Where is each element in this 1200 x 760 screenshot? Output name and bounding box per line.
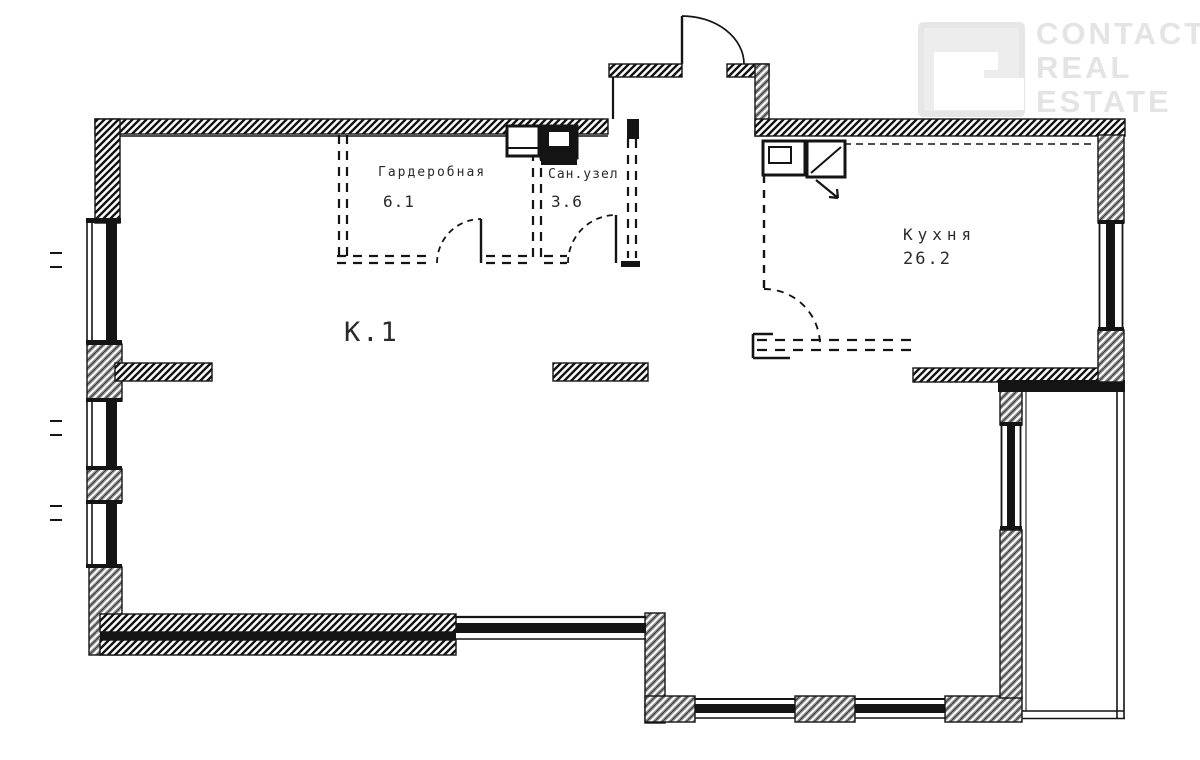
stove-icon	[807, 141, 845, 198]
window-left-1	[86, 218, 122, 345]
entrance-door-swing-arc	[682, 16, 744, 64]
wall-stub-center	[553, 363, 648, 381]
partition-bathroom-right-cap	[621, 261, 640, 267]
partition-bathroom-right-top-block	[627, 119, 639, 139]
wall-lower-pier-1	[645, 696, 695, 722]
contact-real-estate-logo-icon	[918, 22, 1025, 117]
bathroom-name: Сан.узел	[548, 167, 619, 182]
wall-kitchen-bottom	[913, 368, 1100, 382]
kitchen-door-swing-arc	[764, 289, 820, 345]
fixtures	[507, 126, 845, 198]
window-bottom-lower-1	[695, 699, 795, 718]
wall-left-pier-2	[87, 469, 122, 502]
window-bottom-upper	[456, 617, 646, 639]
dressing-room-name: Гардеробная	[378, 165, 486, 180]
watermark-line-1: CONTACT	[1036, 16, 1200, 51]
room1-label: К.1	[344, 317, 399, 348]
dimension-ticks	[50, 253, 62, 520]
kitchen-sink-icon	[763, 141, 805, 175]
stove-vent-mark	[816, 180, 838, 198]
wall-right-kitchen-upper	[1098, 135, 1124, 223]
watermark-line-3: ESTATE	[1036, 84, 1172, 119]
wall-vestibule-top-left	[609, 64, 682, 77]
washing-machine-icon	[507, 126, 539, 156]
wall-stub-left	[115, 363, 212, 381]
floor-plan-page: CONTACT REAL ESTATE	[0, 0, 1200, 760]
kitchen-area: 26.2	[903, 249, 952, 269]
window-kitchen-right	[1098, 220, 1124, 331]
dressing-room-area: 6.1	[383, 192, 415, 211]
window-left-2	[86, 398, 122, 470]
bathroom-door-swing-arc	[568, 215, 616, 263]
kitchen-name: Кухня	[903, 225, 976, 244]
balcony-outline	[1022, 383, 1125, 719]
wall-bottom-band-inner	[100, 640, 456, 655]
wall-stubs	[115, 363, 648, 381]
window-right-lower	[1000, 422, 1022, 530]
sink-icon	[541, 126, 577, 165]
wall-top-right	[755, 119, 1125, 136]
wall-right-lower-lower	[1000, 530, 1022, 698]
wall-lower-pier-2	[795, 696, 855, 722]
room-labels: Гардеробная 6.1 Сан.узел 3.6 К.1 Кухня 2…	[344, 165, 976, 348]
watermark-line-2: REAL	[1036, 50, 1132, 85]
watermark: CONTACT REAL ESTATE	[918, 16, 1200, 119]
wall-lower-pier-3	[945, 696, 1022, 722]
wall-left-upper	[95, 119, 120, 223]
window-left-3	[86, 500, 122, 568]
wall-bottom-band-core	[100, 632, 456, 640]
dressing-door-swing-arc	[437, 219, 481, 263]
partition-kitchen-door-stub	[753, 334, 790, 358]
floor-plan-drawing: CONTACT REAL ESTATE	[0, 0, 1200, 760]
bathroom-area: 3.6	[551, 192, 583, 211]
wall-right-kitchen-lower	[1098, 330, 1124, 382]
window-bottom-lower-2	[855, 699, 945, 718]
wall-bottom-band-outer	[100, 614, 456, 632]
